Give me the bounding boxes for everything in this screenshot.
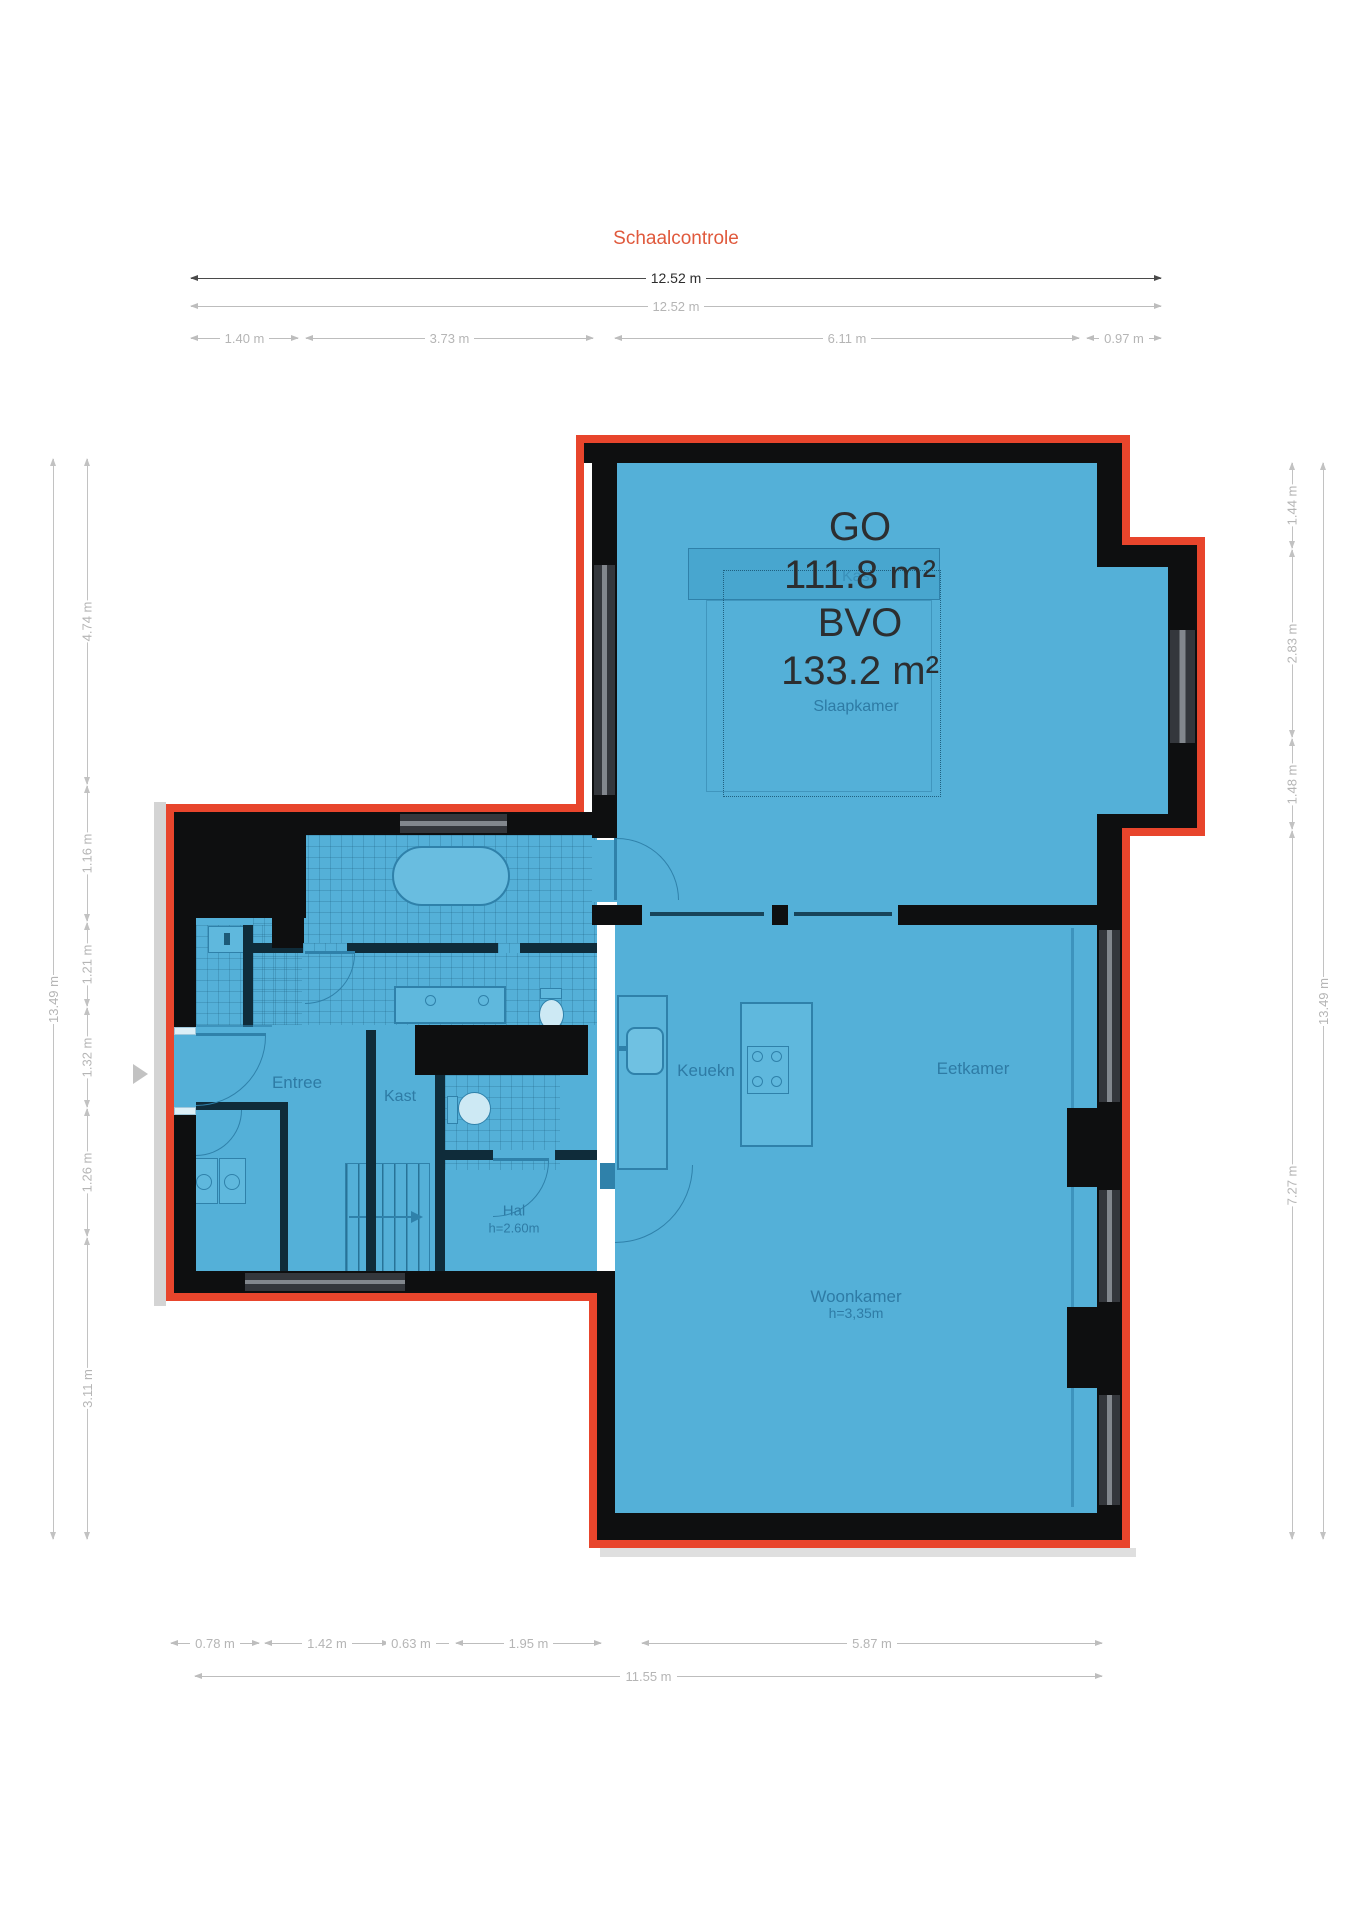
window-bathroom-top — [400, 814, 507, 833]
dim-right-seg-3: 1.48 m — [1285, 738, 1299, 830]
stairs-arrow-icon — [411, 1211, 423, 1223]
outline-top — [576, 435, 1130, 443]
area-bvo-value: 133.2 m² — [640, 647, 1080, 695]
dim-bottom-seg-5: 5.87 m — [641, 1636, 1103, 1650]
kitchen-counter — [617, 995, 668, 1170]
outline-bay-bottom — [1122, 828, 1205, 836]
wall-pier — [1067, 1307, 1100, 1388]
floorplan-page: Schaalcontrole 12.52 m 12.52 m 1.40 m 3.… — [0, 0, 1358, 1920]
interior-wall — [366, 1030, 376, 1271]
dim-right-seg-1: 1.44 m — [1285, 462, 1299, 549]
front-door-opening — [174, 1035, 196, 1107]
outline-bedroom-left — [576, 435, 584, 812]
toilet2-bowl — [458, 1092, 491, 1125]
kitchen-sink — [626, 1027, 664, 1075]
dim-left-seg-5: 1.26 m — [80, 1108, 94, 1237]
dim-left-overall: 13.49 m — [46, 458, 60, 1540]
toilet2-tank — [447, 1096, 458, 1124]
burner-icon — [771, 1051, 782, 1062]
wall-bedroom-top — [584, 443, 1122, 463]
dim-left-seg-2: 1.16 m — [80, 785, 94, 922]
window-sill-line — [1071, 928, 1074, 1507]
door-jamb — [174, 1027, 196, 1035]
wall-left-section-top — [174, 812, 592, 835]
outline-left — [166, 804, 174, 1301]
room-label-woonkamer-height: h=3,35m — [829, 1305, 884, 1321]
area-go-label: GO — [640, 503, 1080, 551]
dim-left-seg-6: 3.11 m — [80, 1237, 94, 1540]
dim-bottom-seg-3: 0.63 m — [372, 1636, 450, 1650]
wall-living-left — [597, 1271, 615, 1540]
outline-left-section-top — [166, 804, 584, 812]
washer-door-icon — [196, 1174, 212, 1190]
room-label-slaapkamer: Slaapkamer — [813, 698, 898, 716]
area-summary: GO 111.8 m² BVO 133.2 m² — [640, 503, 1080, 695]
underlay-left — [154, 802, 166, 1306]
window-living-right-2 — [1099, 1395, 1120, 1505]
dim-left-seg-3: 1.21 m — [80, 922, 94, 1007]
outline-right — [1122, 828, 1130, 1548]
dim-right-seg-2: 2.83 m — [1285, 549, 1299, 738]
sliding-door-panel — [650, 912, 764, 916]
interior-wall — [435, 1075, 445, 1271]
utility-shaft-extension — [272, 834, 304, 948]
window-dining-right — [1099, 930, 1120, 1102]
outline-left-section-bottom — [166, 1293, 597, 1301]
room-label-eetkamer: Eetkamer — [937, 1059, 1010, 1079]
dim-top-overall-light: 12.52 m — [190, 299, 1162, 313]
outline-right-upper — [1122, 435, 1130, 545]
toilet-tank — [540, 988, 562, 999]
room-label-hal: Hal — [503, 1203, 526, 1220]
room-label-kast: Kast — [384, 1088, 416, 1106]
dim-top-seg-4: 0.97 m — [1086, 331, 1162, 345]
dim-bottom-overall: 11.55 m — [194, 1669, 1103, 1683]
dim-top-overall-dark: 12.52 m — [190, 271, 1162, 285]
room-label-entree: Entree — [272, 1073, 322, 1093]
wall-bedroom-right-upper — [1097, 443, 1122, 551]
interior-wall — [243, 925, 253, 1027]
toilet-door-opening — [498, 943, 520, 953]
window-living-right-1 — [1099, 1190, 1120, 1302]
arrow-left-icon — [190, 275, 198, 281]
burner-icon — [752, 1051, 763, 1062]
room-fill-living — [615, 925, 1097, 1513]
burner-icon — [752, 1076, 763, 1087]
stairs-direction-line — [349, 1216, 413, 1218]
wall-living-bottom — [597, 1513, 1122, 1540]
window-bedroom-left — [594, 565, 615, 795]
outline-bay-top — [1122, 537, 1205, 545]
dim-top-seg-1: 1.40 m — [190, 331, 299, 345]
sink-tap-icon — [425, 995, 436, 1006]
coat-hook-icon — [224, 933, 230, 945]
arrow-right-icon — [1154, 275, 1162, 281]
dim-bottom-seg-1: 0.78 m — [170, 1636, 260, 1650]
window-left-section-bottom — [245, 1273, 405, 1291]
page-title: Schaalcontrole — [476, 228, 876, 250]
area-bvo-label: BVO — [640, 599, 1080, 647]
room-fill-bay — [1093, 567, 1168, 814]
hal-living-door-leaf — [600, 1163, 615, 1189]
room-label-woonkamer: Woonkamer — [810, 1287, 901, 1307]
outline-bottom — [589, 1540, 1130, 1548]
outline-living-left — [589, 1293, 597, 1548]
vanity-double-sink — [394, 986, 506, 1024]
dim-left-seg-1: 4.74 m — [80, 458, 94, 785]
area-go-value: 111.8 m² — [640, 551, 1080, 599]
sliding-door-panel — [794, 912, 892, 916]
outline-bay-right — [1197, 537, 1205, 836]
shadow-bottom — [600, 1548, 1136, 1557]
dim-left-seg-4: 1.32 m — [80, 1007, 94, 1108]
window-bay — [1170, 630, 1195, 743]
burner-icon — [771, 1076, 782, 1087]
room-label-keuken: Keuekn — [677, 1061, 735, 1081]
left-margin-marker-icon — [133, 1064, 148, 1084]
dim-top-seg-3: 6.11 m — [614, 331, 1080, 345]
dim-right-seg-4: 7.27 m — [1285, 830, 1299, 1540]
interior-wall-mass — [415, 1025, 588, 1075]
dim-top-seg-2: 3.73 m — [305, 331, 594, 345]
sink-tap-icon — [478, 995, 489, 1006]
kitchen-tap-icon — [617, 1046, 628, 1051]
dim-right-overall: 13.49 m — [1316, 462, 1330, 1540]
bathtub — [392, 846, 510, 906]
door-jamb — [174, 1107, 196, 1115]
dryer-door-icon — [224, 1174, 240, 1190]
dim-bottom-seg-4: 1.95 m — [455, 1636, 602, 1650]
shower-door-line — [196, 1025, 272, 1027]
room-label-hal-height: h=2.60m — [489, 1221, 540, 1236]
interior-wall — [280, 1110, 288, 1271]
wall-pier — [1067, 1108, 1100, 1187]
